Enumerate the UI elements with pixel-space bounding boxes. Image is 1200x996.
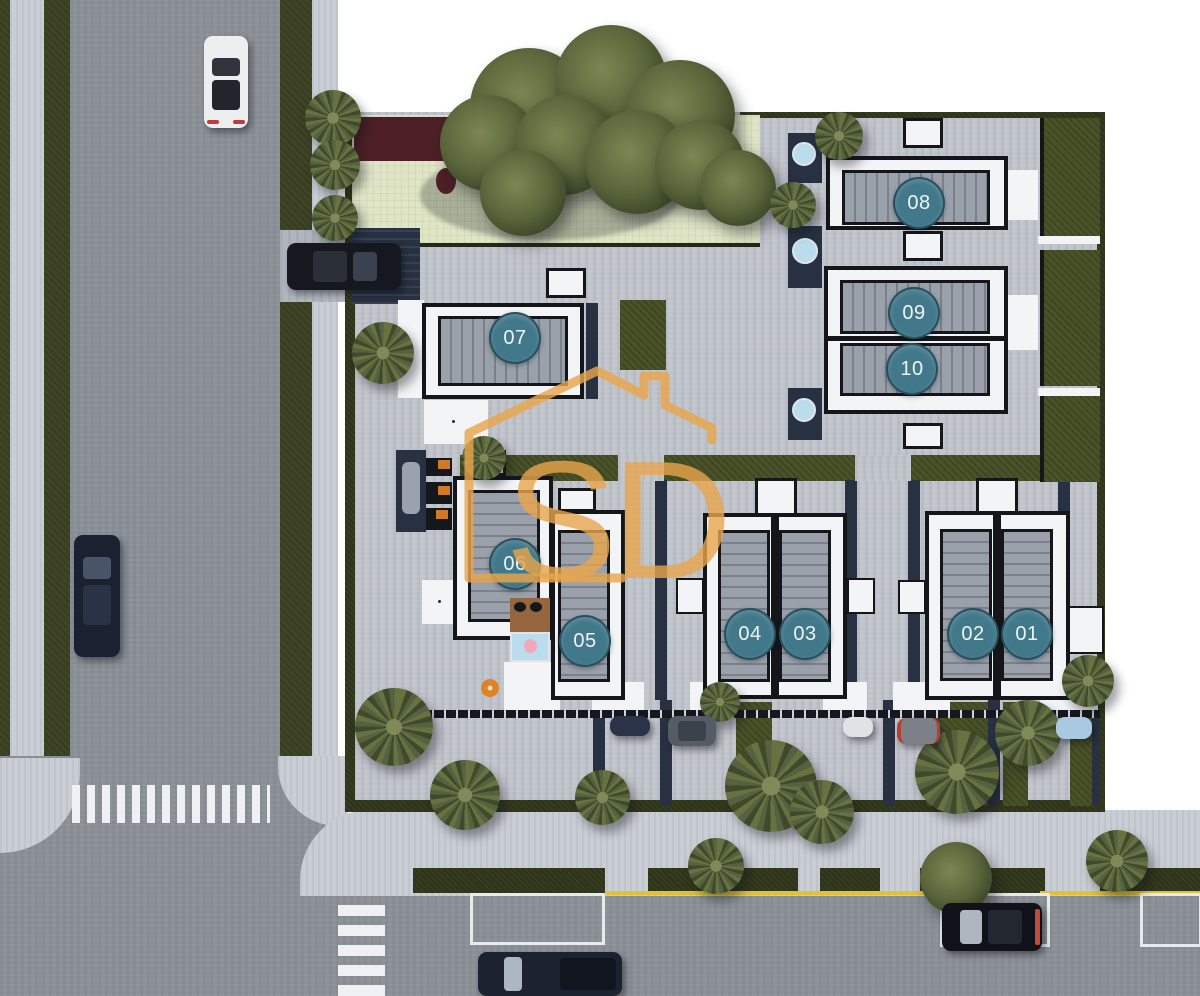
round-pool xyxy=(792,398,816,422)
patio-dot xyxy=(452,420,455,423)
entry-stub-05 xyxy=(558,488,596,512)
sidewalk-left xyxy=(10,0,44,772)
black-car-parked xyxy=(942,903,1042,951)
tree xyxy=(700,150,776,226)
palm-tree xyxy=(355,688,433,766)
lounger-cushion xyxy=(438,486,450,495)
porch-09-10 xyxy=(1008,295,1038,350)
dark-car-driveway xyxy=(610,716,650,736)
palm-tree xyxy=(305,90,361,146)
palm-tree xyxy=(688,838,744,894)
grass-verge xyxy=(280,300,312,772)
car-roof xyxy=(212,80,240,110)
deck-lounger xyxy=(514,602,526,612)
black-car-driveway xyxy=(287,243,401,290)
entry-stub-07 xyxy=(546,268,586,298)
white-car xyxy=(204,36,248,128)
unit-badge-02[interactable]: 02 xyxy=(947,608,999,660)
grass-verge xyxy=(44,0,70,762)
yard-gap xyxy=(1038,236,1100,244)
orange-umbrella xyxy=(481,679,499,697)
crosswalk-bottom xyxy=(338,897,385,996)
car-roof xyxy=(678,721,706,741)
palm-tree xyxy=(790,780,854,844)
unit-badge-01[interactable]: 01 xyxy=(1001,608,1053,660)
navy-car-left-road xyxy=(74,535,120,657)
porch-08 xyxy=(1008,170,1038,220)
entry-stub xyxy=(903,423,943,449)
white-car-driveway xyxy=(843,717,873,737)
blue-car-driveway xyxy=(1056,717,1092,739)
palm-tree xyxy=(995,700,1061,766)
palm-tree xyxy=(1062,655,1114,707)
side-porch xyxy=(898,580,926,614)
entry-stub-02-01 xyxy=(976,478,1018,514)
pool-float xyxy=(524,639,537,653)
backyard-08 xyxy=(1040,118,1100,236)
sidewalk-hedge xyxy=(413,868,605,893)
sidewalk-site-edge xyxy=(312,300,338,820)
unit-badge-08[interactable]: 08 xyxy=(893,177,945,229)
driveway-gap xyxy=(855,455,911,481)
side-porch xyxy=(847,578,875,614)
car-taillight xyxy=(207,120,219,124)
road-bottom xyxy=(280,893,1200,996)
car-roof xyxy=(988,910,1022,944)
unit-badge-05[interactable]: 05 xyxy=(559,615,611,667)
side-porch xyxy=(676,578,704,614)
car-windshield xyxy=(960,910,982,944)
tree xyxy=(480,150,566,236)
car-taillight xyxy=(1035,909,1040,945)
pickup-truck xyxy=(478,952,622,996)
entry-stub-09 xyxy=(903,231,943,261)
car-roof xyxy=(313,251,347,282)
gray-suv-driveway xyxy=(668,716,716,746)
unit-badge-10[interactable]: 10 xyxy=(886,343,938,395)
palm-tree xyxy=(1086,830,1148,892)
yellow-curb-line xyxy=(605,891,940,895)
lounger-cushion xyxy=(438,460,450,469)
parking-bay xyxy=(1140,893,1200,947)
parking-bay xyxy=(470,893,605,945)
palm-tree xyxy=(575,770,630,825)
red-trim-car-driveway xyxy=(897,718,940,744)
round-pool xyxy=(792,142,816,166)
entry-stub-08 xyxy=(903,118,943,148)
palm-tree xyxy=(310,140,360,190)
palm-tree xyxy=(815,112,863,160)
palm-tree xyxy=(462,436,506,480)
grass-verge xyxy=(0,0,10,766)
side-porch-01 xyxy=(1066,606,1104,654)
unit-badge-09[interactable]: 09 xyxy=(888,287,940,339)
palm-tree xyxy=(352,322,414,384)
truck-windshield xyxy=(504,957,522,991)
party-wall xyxy=(993,515,1001,696)
crosswalk-left xyxy=(72,785,270,823)
carport-car xyxy=(402,462,420,514)
car-taillight xyxy=(233,120,245,124)
deck-lounger xyxy=(530,602,542,612)
plot-divider xyxy=(586,303,598,399)
party-wall xyxy=(771,517,779,695)
car-windshield xyxy=(212,58,240,76)
palm-tree xyxy=(312,195,358,241)
lounger-cushion xyxy=(436,510,448,519)
unit-badge-06[interactable]: 06 xyxy=(489,538,541,590)
palm-tree xyxy=(770,182,816,228)
unit-badge-04[interactable]: 04 xyxy=(724,608,776,660)
yard-07 xyxy=(620,300,666,370)
entry-stub-04-03 xyxy=(755,478,797,516)
patio-dot xyxy=(438,600,441,603)
car-windshield xyxy=(83,557,111,579)
truck-bed xyxy=(560,958,616,990)
site-plan: 01 02 03 04 05 06 07 08 09 10 xyxy=(0,0,1200,996)
backyard-10 xyxy=(1040,396,1100,482)
palm-tree xyxy=(430,760,500,830)
unit-badge-03[interactable]: 03 xyxy=(779,608,831,660)
unit-badge-07[interactable]: 07 xyxy=(489,312,541,364)
driveway-gap xyxy=(618,455,664,481)
sidewalk-hedge xyxy=(820,868,880,893)
car-roof xyxy=(83,585,111,625)
plot-divider xyxy=(655,480,667,700)
car-windshield xyxy=(353,252,377,281)
round-pool xyxy=(792,238,818,264)
yard-gap xyxy=(1038,388,1100,396)
backyard-09 xyxy=(1040,250,1100,386)
